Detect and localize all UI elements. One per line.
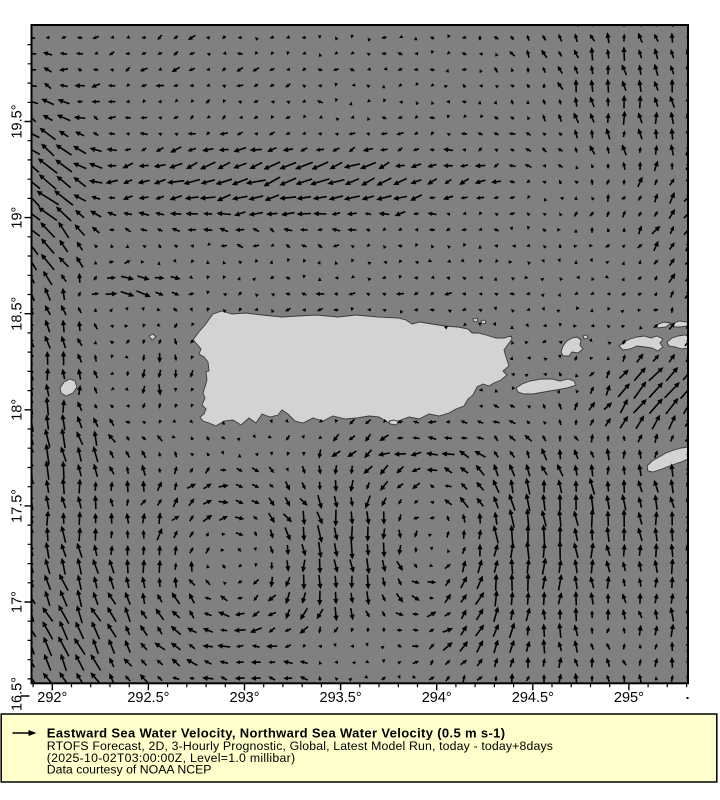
svg-text:16.5°: 16.5°: [10, 677, 26, 711]
svg-text:293°: 293°: [230, 690, 260, 706]
svg-text:294.5°: 294.5°: [512, 690, 554, 706]
svg-text:18.5°: 18.5°: [10, 297, 26, 331]
svg-text:18°: 18°: [10, 399, 26, 421]
svg-text:Data courtesy of NOAA NCEP: Data courtesy of NOAA NCEP: [47, 763, 212, 777]
svg-text:295°: 295°: [614, 690, 644, 706]
svg-text:292°: 292°: [37, 690, 67, 706]
svg-text:293.5°: 293.5°: [320, 690, 362, 706]
svg-text:292.5°: 292.5°: [127, 690, 169, 706]
svg-text:19.5°: 19.5°: [10, 104, 26, 138]
svg-text:19°: 19°: [10, 207, 26, 229]
svg-text:294°: 294°: [422, 690, 452, 706]
svg-text:17°: 17°: [10, 591, 26, 613]
svg-text:17.5°: 17.5°: [10, 489, 26, 523]
